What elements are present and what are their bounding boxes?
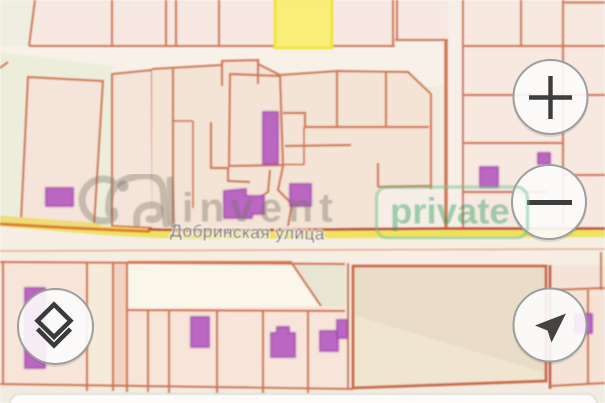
svg-text:invent: invent bbox=[182, 185, 339, 231]
svg-text:private: private bbox=[390, 191, 510, 232]
